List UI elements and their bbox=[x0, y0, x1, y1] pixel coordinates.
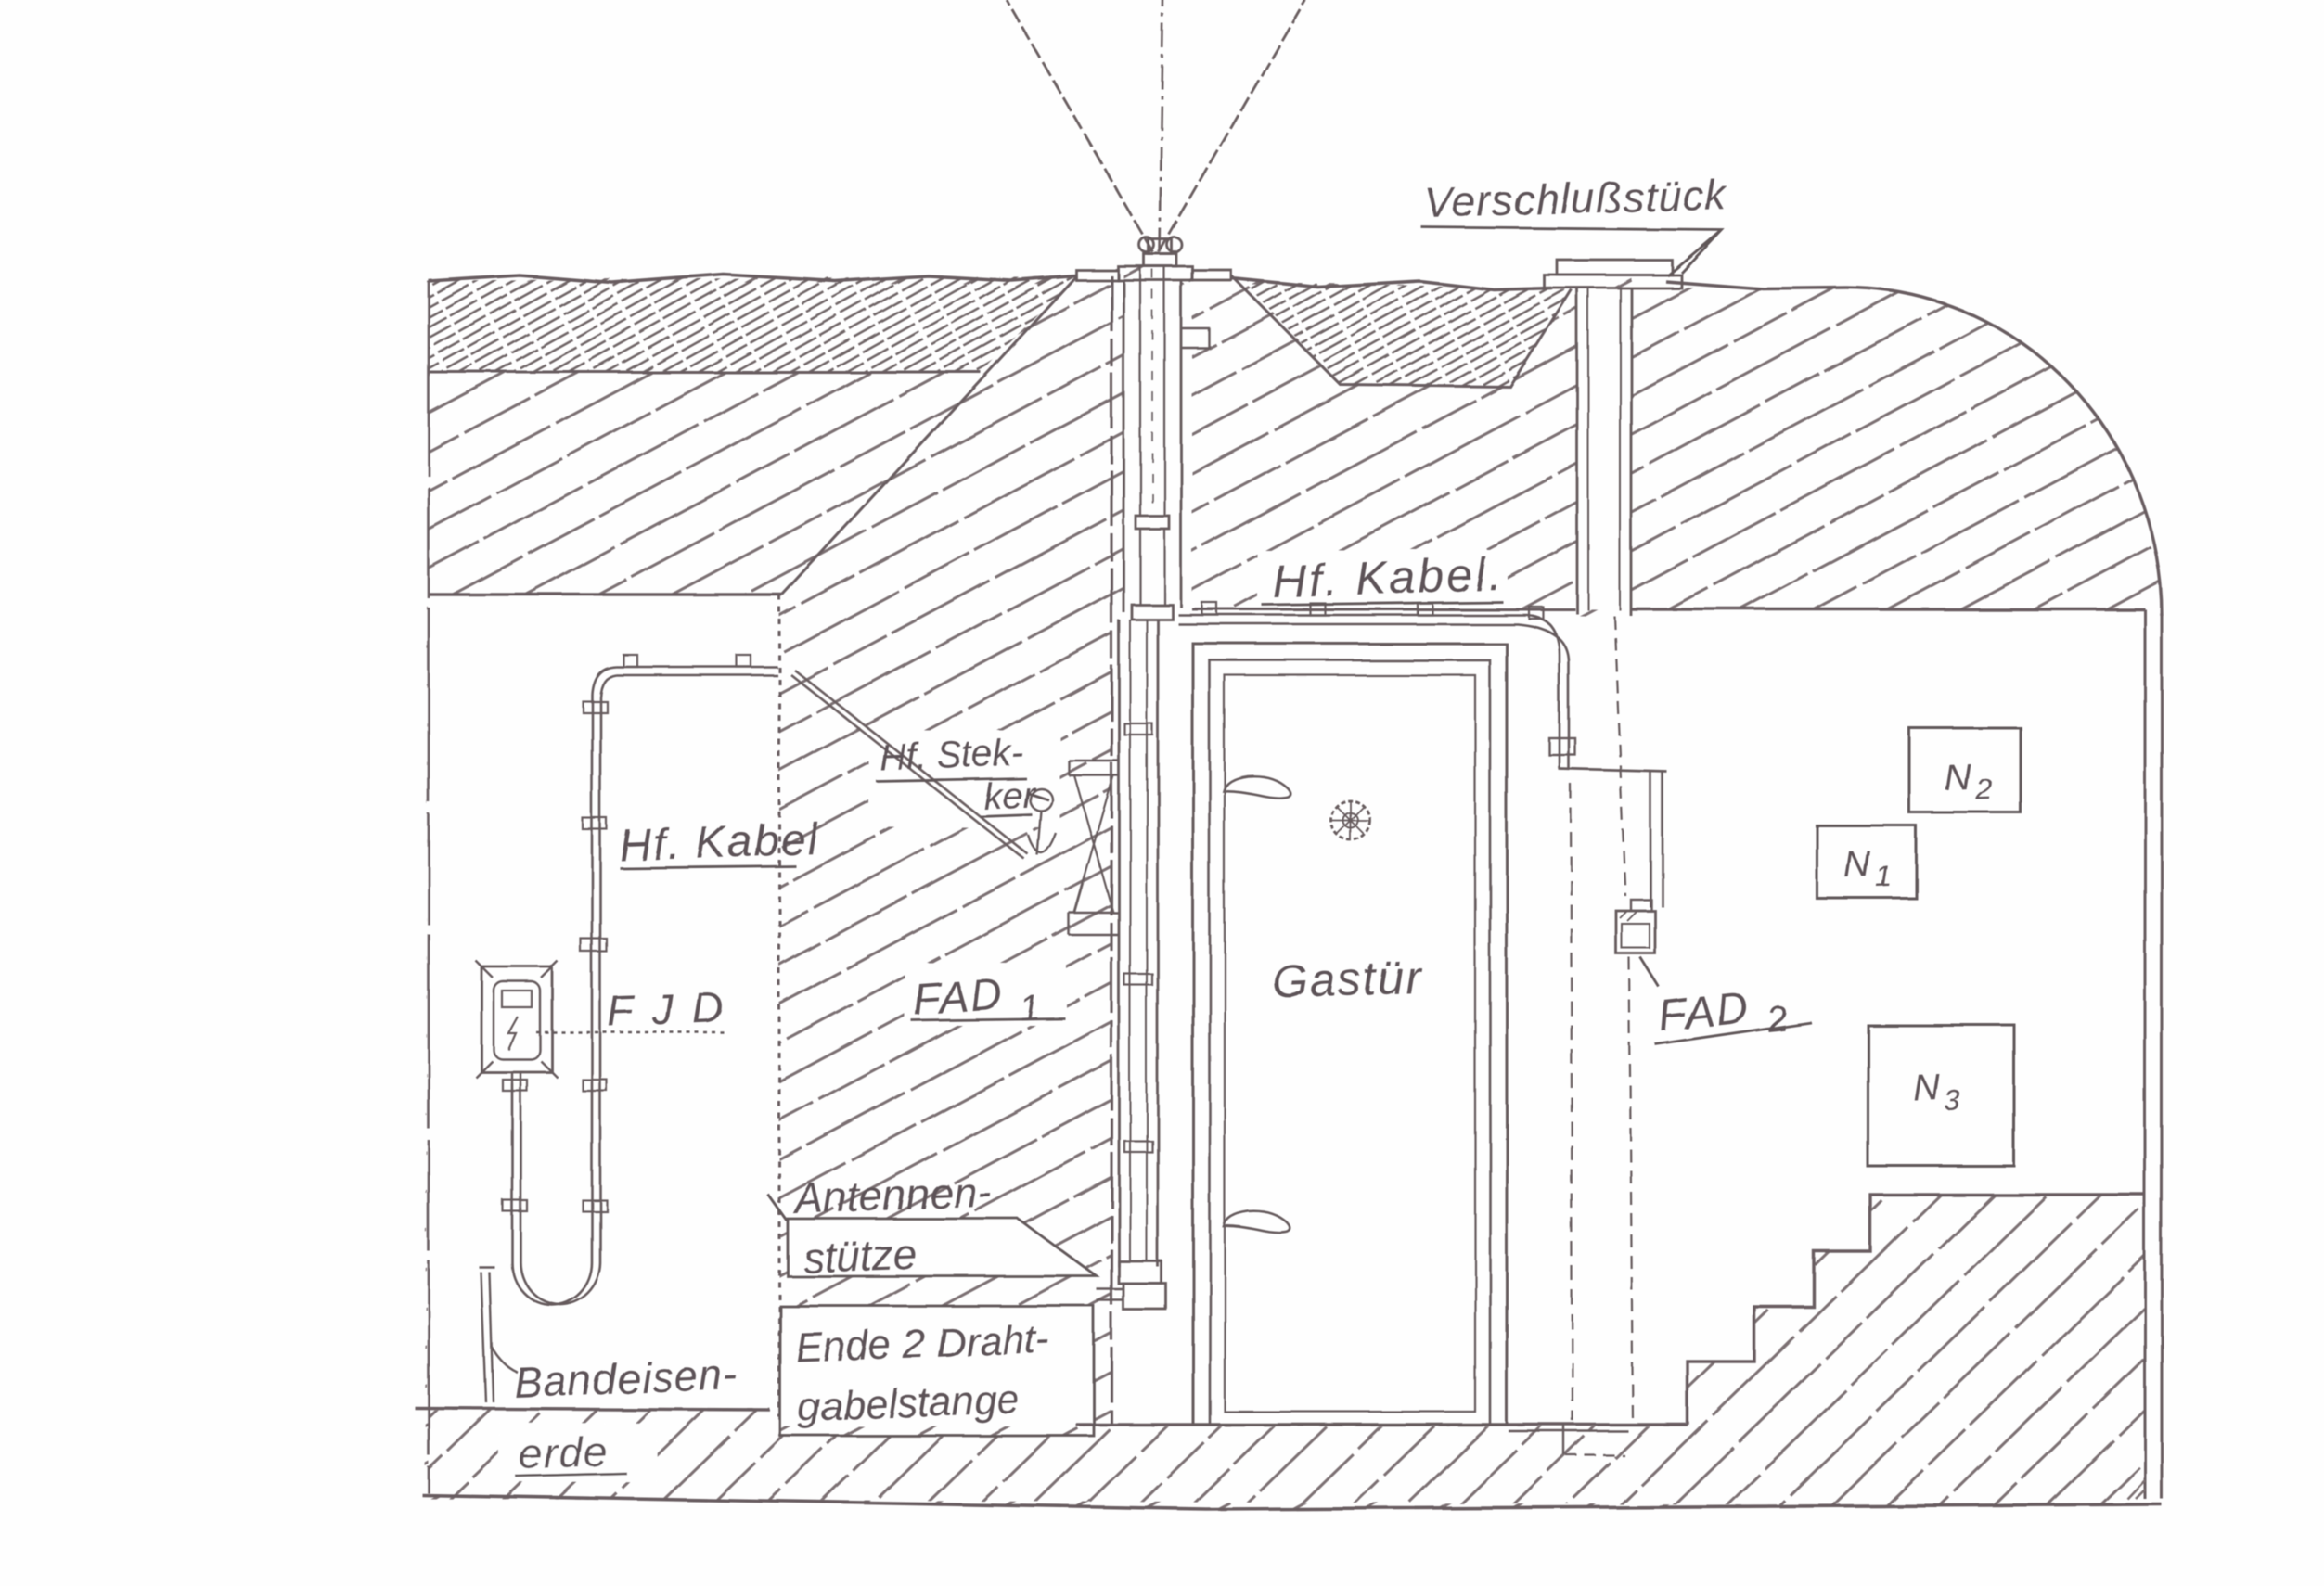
svg-text:N: N bbox=[1944, 757, 1972, 799]
svg-text:FAD: FAD bbox=[911, 969, 1006, 1025]
svg-text:F J D: F J D bbox=[607, 983, 728, 1035]
svg-text:2: 2 bbox=[1765, 999, 1789, 1040]
svg-text:1: 1 bbox=[1875, 859, 1893, 893]
svg-text:Verschlußstück: Verschlußstück bbox=[1423, 170, 1728, 226]
svg-text:Hf. Kabel.: Hf. Kabel. bbox=[1271, 547, 1504, 608]
svg-text:1: 1 bbox=[1019, 989, 1040, 1029]
svg-text:Bandeisen-: Bandeisen- bbox=[513, 1350, 739, 1406]
svg-text:N: N bbox=[1843, 844, 1872, 886]
svg-text:3: 3 bbox=[1944, 1083, 1961, 1118]
svg-text:ker: ker bbox=[982, 774, 1037, 817]
svg-text:Ende 2 Draht-: Ende 2 Draht- bbox=[795, 1316, 1050, 1371]
svg-text:Gastür: Gastür bbox=[1271, 951, 1423, 1008]
svg-text:stütze: stütze bbox=[802, 1230, 918, 1282]
svg-text:gabelstange: gabelstange bbox=[797, 1377, 1021, 1430]
svg-text:FAD: FAD bbox=[1657, 983, 1753, 1042]
svg-text:Hf. Stek-: Hf. Stek- bbox=[879, 733, 1024, 778]
svg-text:N: N bbox=[1912, 1067, 1941, 1108]
svg-text:Antennen-: Antennen- bbox=[791, 1168, 993, 1222]
svg-text:erde: erde bbox=[519, 1427, 610, 1478]
svg-text:Hf. Kabel: Hf. Kabel bbox=[619, 815, 820, 871]
svg-text:2: 2 bbox=[1974, 772, 1993, 806]
